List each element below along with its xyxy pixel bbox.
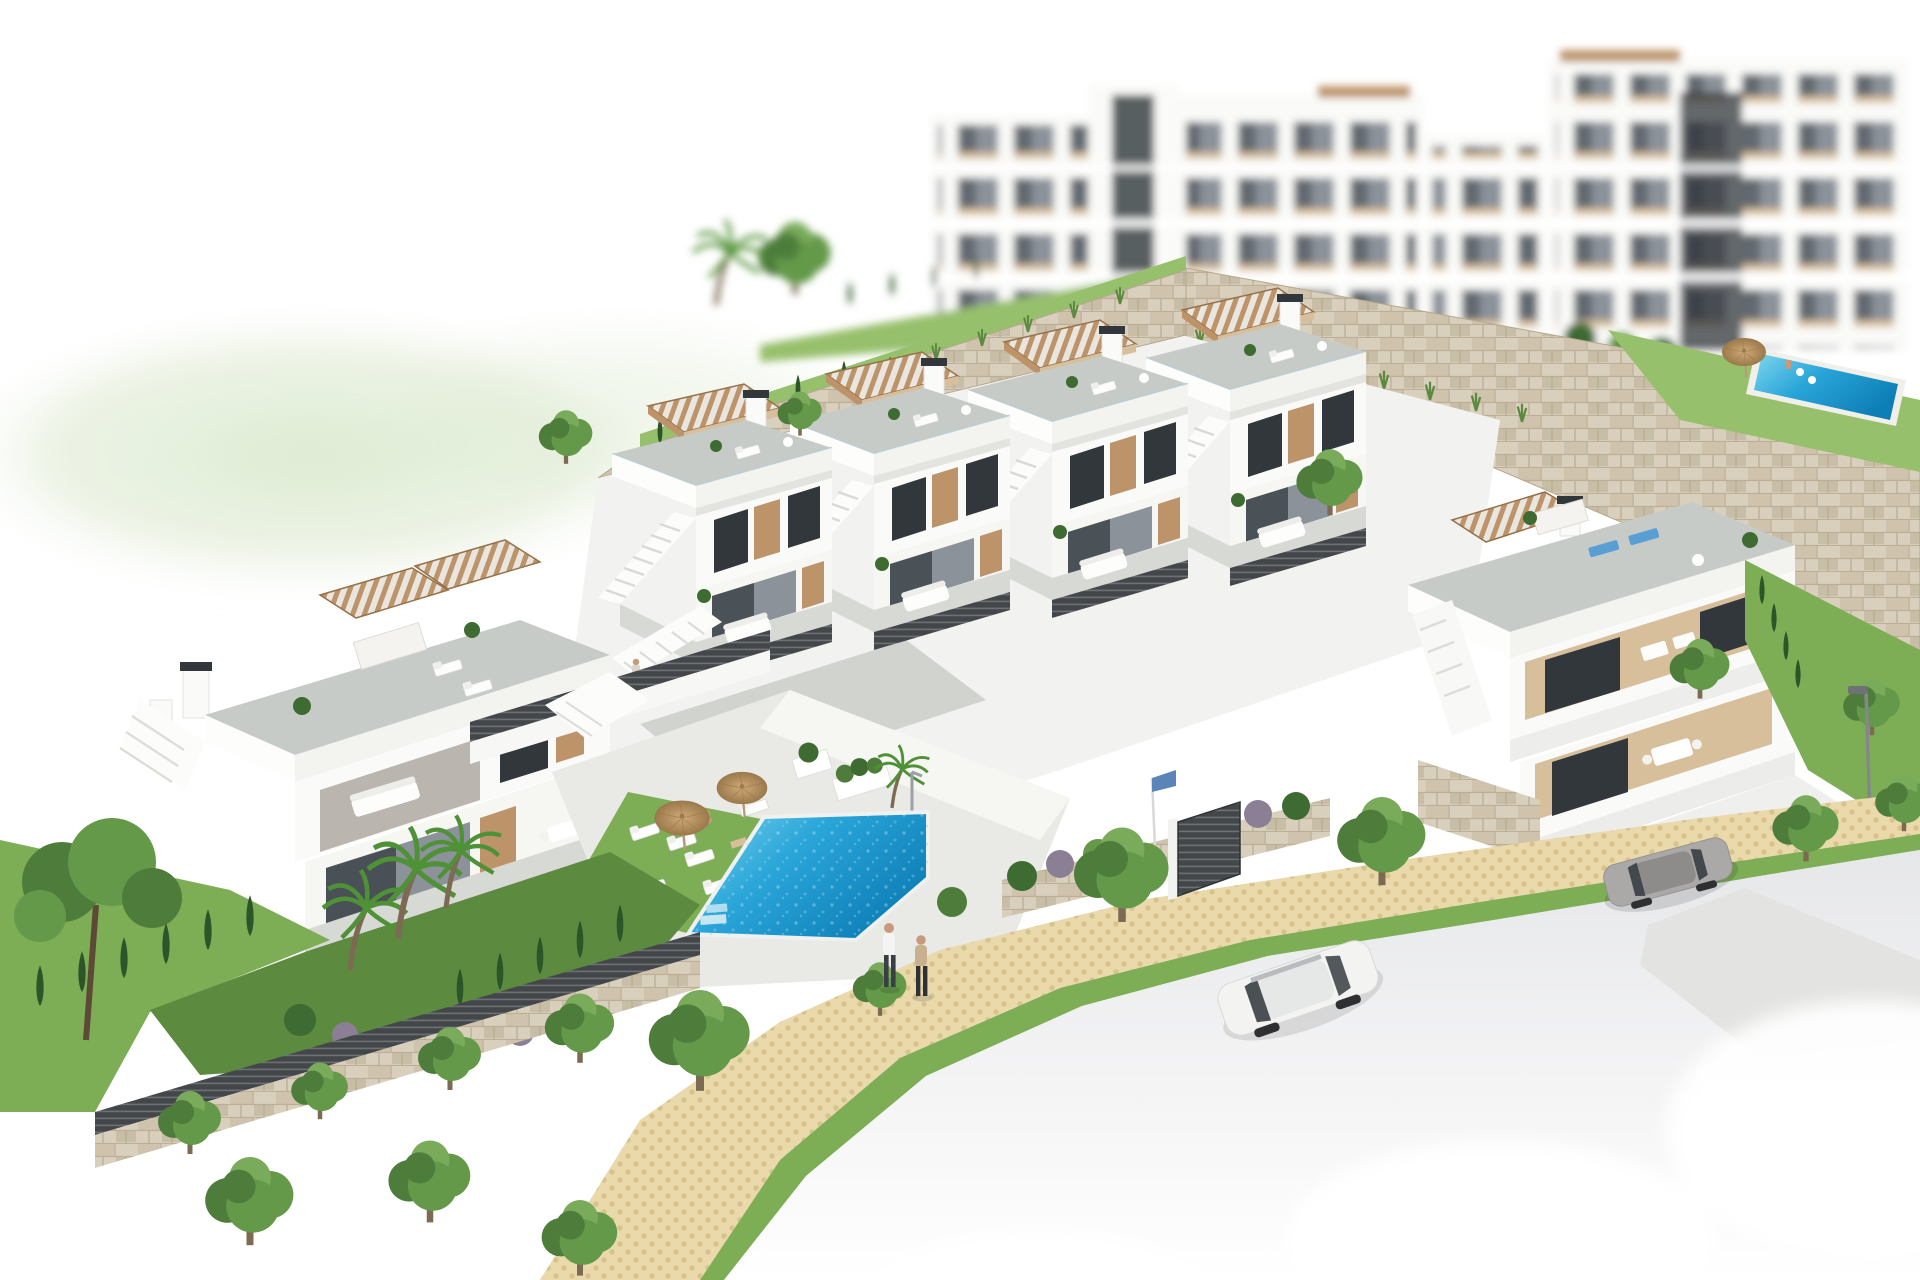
chimney-cap [180, 662, 212, 671]
pool-steps [706, 904, 728, 913]
balcony-slab-band [930, 164, 1910, 172]
gate-post [1168, 818, 1178, 900]
roof-railing [1318, 86, 1410, 98]
chimney [183, 668, 209, 718]
person-shadow [880, 987, 900, 994]
roof-plant [1523, 511, 1537, 525]
person-leg [884, 955, 889, 987]
roof-table [1692, 554, 1704, 566]
apartment-windows [1432, 146, 1538, 336]
person-head [916, 935, 926, 945]
balcony-slab-band [930, 218, 1910, 228]
roof-plant [464, 622, 480, 638]
flowering-shrub [1244, 800, 1272, 828]
wall-shrub [1282, 792, 1310, 820]
pine-canopy [14, 890, 66, 942]
roof-plant [293, 697, 311, 715]
person-leg [923, 966, 927, 996]
balcony-slab-band [930, 272, 1910, 282]
pool-chair [1808, 376, 1816, 384]
garden-shrub [284, 1004, 316, 1036]
scene-svg [0, 0, 1920, 1280]
roof-railing [1560, 50, 1680, 62]
pool-chair [1796, 368, 1804, 376]
person-head [884, 923, 894, 933]
roof-plant [1742, 532, 1758, 548]
wall-shrub [937, 887, 967, 917]
flowering-shrub [1046, 850, 1074, 878]
render-canvas [0, 0, 1920, 1280]
person-shadow [912, 995, 932, 1002]
person-torso [883, 933, 895, 955]
person-leg [916, 966, 920, 996]
pool-steps [700, 914, 727, 925]
pine-canopy [122, 868, 182, 928]
tiny-person [1786, 360, 1791, 369]
person-torso [915, 945, 927, 966]
street-lamp-head [1848, 686, 1868, 694]
person-head [633, 659, 639, 665]
wall-shrub [1007, 861, 1037, 891]
person-leg [891, 955, 896, 987]
